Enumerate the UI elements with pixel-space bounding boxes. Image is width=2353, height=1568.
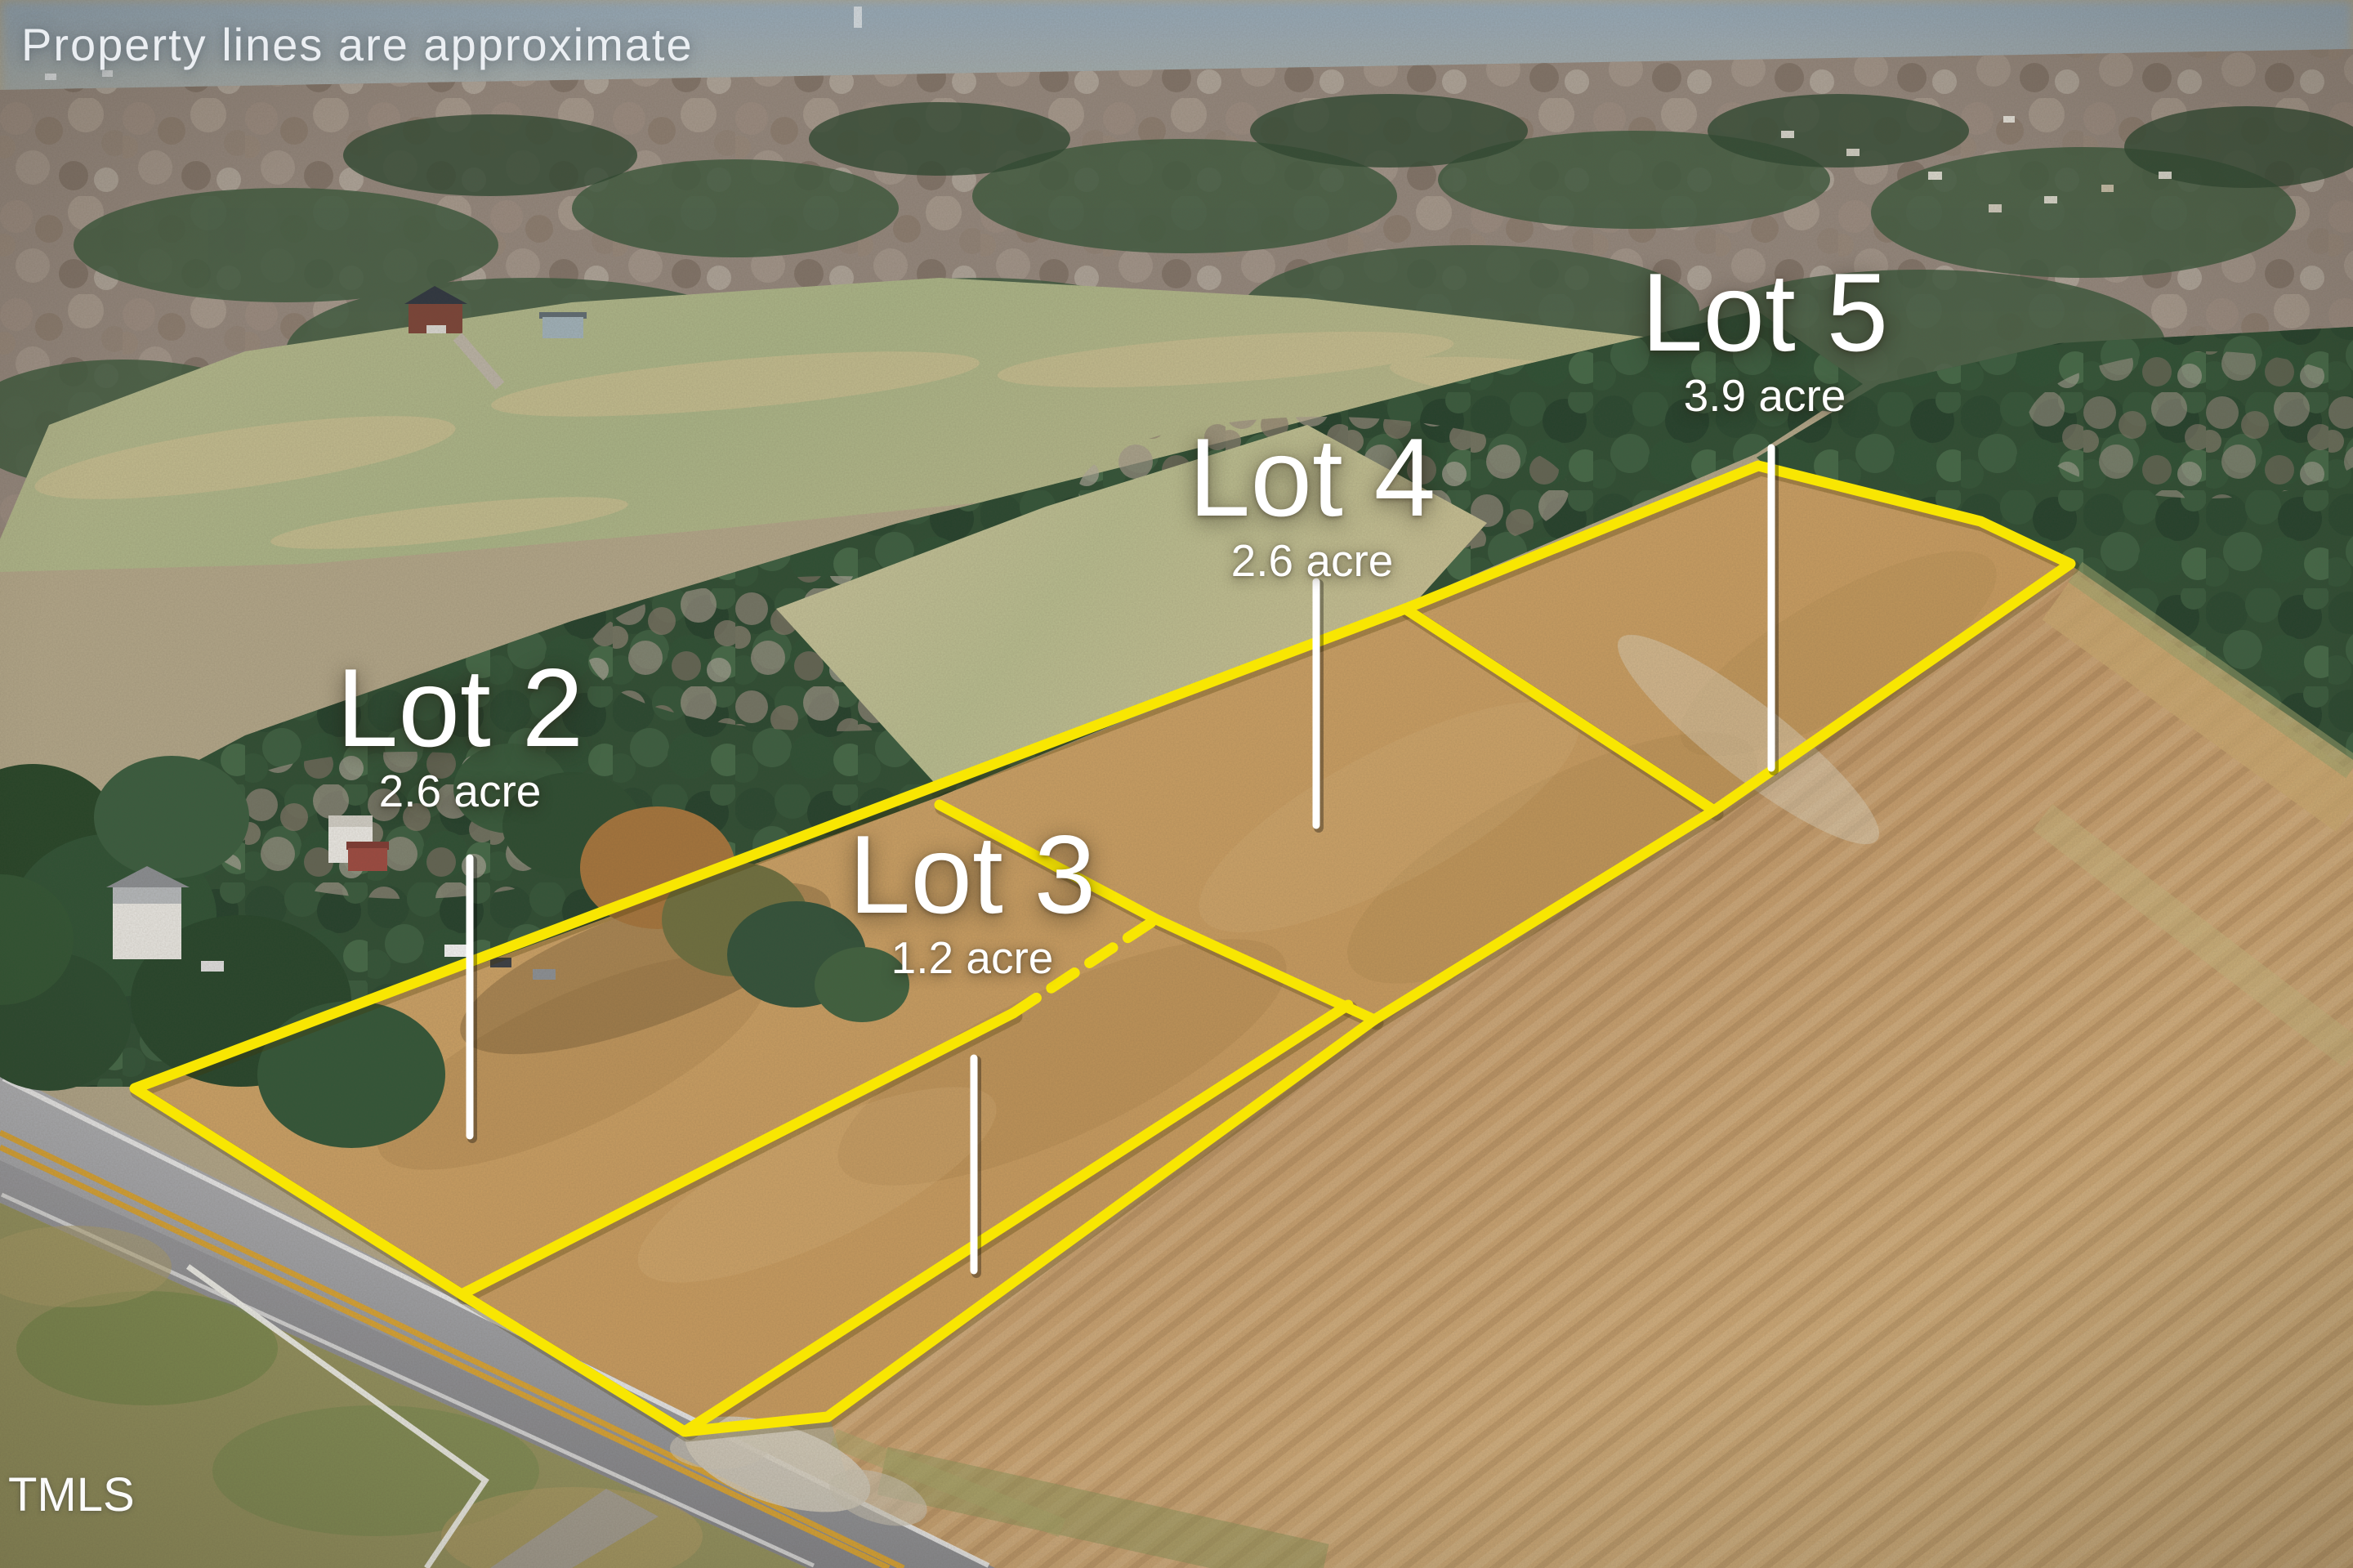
lot-label-3: Lot 3 1.2 acre <box>849 819 1096 983</box>
lot-acreage: 2.6 acre <box>337 766 583 816</box>
lot-name: Lot 3 <box>849 819 1096 930</box>
lot-name: Lot 2 <box>337 652 583 763</box>
lot-label-4: Lot 4 2.6 acre <box>1189 422 1435 586</box>
aerial-listing-photo: Property lines are approximate Lot 2 2.6… <box>0 0 2353 1568</box>
disclaimer-text: Property lines are approximate <box>21 18 694 71</box>
lot-acreage: 2.6 acre <box>1189 536 1435 586</box>
lot-acreage: 3.9 acre <box>1641 371 1888 421</box>
lot-label-2: Lot 2 2.6 acre <box>337 652 583 816</box>
lot-label-5: Lot 5 3.9 acre <box>1641 257 1888 421</box>
watermark-text: TMLS <box>8 1467 135 1522</box>
lot-name: Lot 4 <box>1189 422 1435 533</box>
lot-name: Lot 5 <box>1641 257 1888 368</box>
lot-acreage: 1.2 acre <box>849 933 1096 983</box>
